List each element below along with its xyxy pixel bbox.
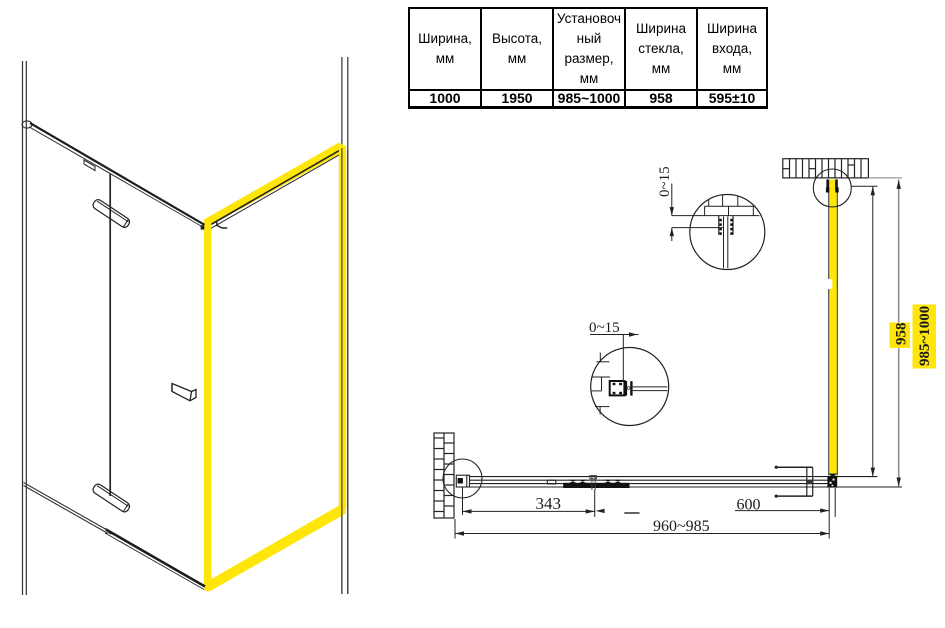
svg-text:0~15: 0~15 [657, 166, 673, 197]
svg-text:600: 600 [737, 497, 761, 514]
svg-text:958: 958 [894, 323, 910, 346]
svg-text:0~15: 0~15 [589, 320, 620, 336]
svg-text:960~985: 960~985 [653, 518, 710, 535]
svg-text:343: 343 [536, 494, 562, 513]
svg-text:985~1000: 985~1000 [917, 306, 933, 366]
